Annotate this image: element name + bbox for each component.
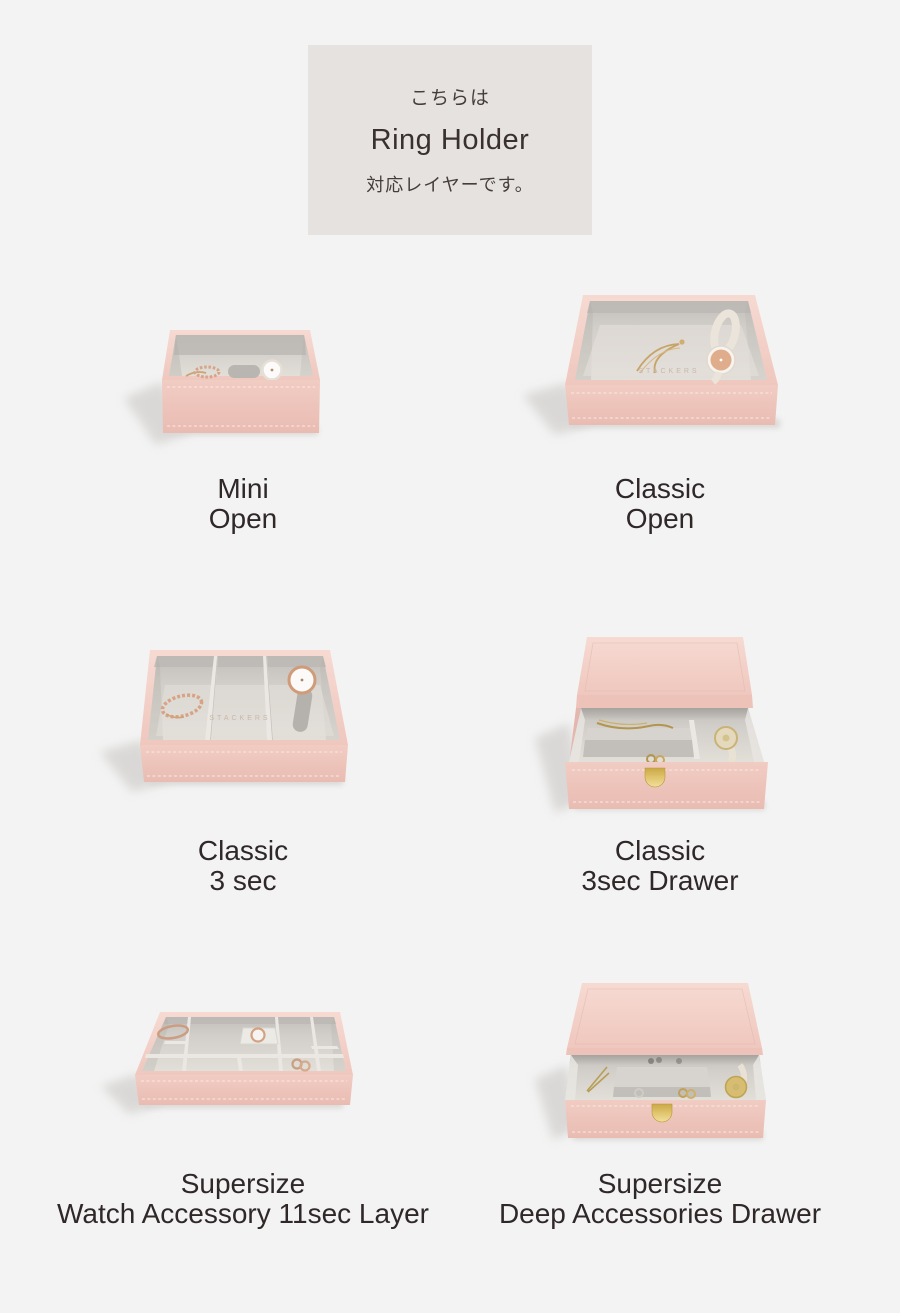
product-label-line1: Classic — [440, 836, 880, 866]
product-label-line1: Classic — [440, 474, 880, 504]
product-label-classic-3sec: Classic 3 sec — [23, 836, 463, 896]
gold-handle — [652, 1104, 672, 1122]
product-label-classic-3sec-drawer: Classic 3sec Drawer — [440, 836, 880, 896]
product-label-line1: Mini — [23, 474, 463, 504]
product-label-line1: Classic — [23, 836, 463, 866]
header-note-box: こちらは Ring Holder 対応レイヤーです。 — [308, 45, 592, 235]
header-line-2: Ring Holder — [371, 124, 530, 157]
product-label-mini-open: Mini Open — [23, 474, 463, 534]
product-label-classic-open: Classic Open — [440, 474, 880, 534]
product-label-line2: Watch Accessory 11sec Layer — [23, 1199, 463, 1229]
box-front — [565, 385, 778, 425]
box-front — [140, 745, 348, 782]
drawer-interior — [565, 1055, 766, 1100]
product-photo-supersize-11sec — [125, 1002, 360, 1114]
product-label-line2: Open — [23, 504, 463, 534]
velvet-block — [583, 728, 694, 757]
emboss-text: STACKERS — [209, 715, 270, 722]
product-label-supersize-11sec: Supersize Watch Accessory 11sec Layer — [23, 1169, 463, 1229]
product-label-line2: 3 sec — [23, 866, 463, 896]
product-photo-supersize-deep-drawer — [555, 975, 790, 1145]
emboss-text: STACKERS — [638, 368, 699, 375]
product-photo-classic-open: STACKERS — [545, 283, 795, 438]
product-label-line2: 3sec Drawer — [440, 866, 880, 896]
box-lid — [576, 637, 753, 708]
gold-handle — [645, 768, 665, 787]
velvet-block — [613, 1067, 711, 1097]
product-photo-classic-3sec: STACKERS — [130, 640, 360, 790]
box-front — [162, 380, 320, 433]
product-photo-classic-3sec-drawer — [555, 628, 795, 818]
header-line-3: 対応レイヤーです。 — [366, 171, 534, 197]
product-comparison-page: こちらは Ring Holder 対応レイヤーです。 — [0, 0, 900, 1313]
box-front — [135, 1075, 353, 1105]
product-label-line2: Open — [440, 504, 880, 534]
watch-strap — [228, 365, 260, 378]
product-photo-mini-open — [150, 320, 335, 445]
product-label-supersize-deep-drawer: Supersize Deep Accessories Drawer — [440, 1169, 880, 1229]
box-lid — [566, 983, 763, 1055]
product-label-line2: Deep Accessories Drawer — [440, 1199, 880, 1229]
header-line-1: こちらは — [410, 83, 490, 110]
drawer-front — [565, 1100, 766, 1138]
watch-box — [240, 1028, 278, 1044]
drawer-front — [565, 762, 768, 809]
product-label-line1: Supersize — [23, 1169, 463, 1199]
product-label-line1: Supersize — [440, 1169, 880, 1199]
drawer-interior — [569, 708, 764, 764]
